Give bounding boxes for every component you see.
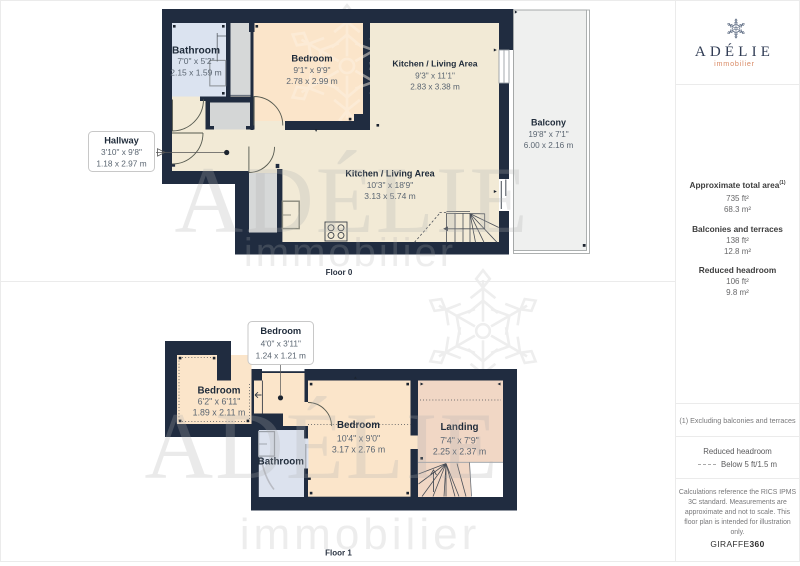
svg-text:Bathroom: Bathroom [172, 46, 220, 57]
svg-text:3'10" x 9'8": 3'10" x 9'8" [101, 147, 142, 157]
svg-text:immobilier: immobilier [240, 510, 480, 559]
svg-text:immobilier: immobilier [244, 231, 456, 275]
svg-text:Bedroom: Bedroom [260, 326, 301, 336]
svg-text:Hallway: Hallway [104, 136, 139, 146]
svg-text:19'8" x 7'1": 19'8" x 7'1" [528, 130, 568, 139]
svg-text:Bedroom: Bedroom [291, 53, 332, 64]
svg-text:4'0" x 3'11": 4'0" x 3'11" [261, 339, 301, 349]
svg-text:ADÉLIE: ADÉLIE [145, 393, 500, 499]
svg-text:2.83 x 3.38 m: 2.83 x 3.38 m [410, 83, 460, 92]
svg-text:Balcony: Balcony [531, 118, 566, 128]
svg-text:6.00 x 2.16 m: 6.00 x 2.16 m [524, 141, 574, 150]
svg-text:1.24 x 1.21 m: 1.24 x 1.21 m [256, 351, 306, 361]
svg-text:9'3" x 11'1": 9'3" x 11'1" [415, 72, 455, 81]
svg-text:2.78 x 2.99 m: 2.78 x 2.99 m [286, 76, 338, 86]
svg-text:Kitchen / Living Area: Kitchen / Living Area [392, 59, 477, 69]
svg-text:1.18 x 2.97 m: 1.18 x 2.97 m [96, 159, 146, 169]
svg-text:2.15 x 1.59 m: 2.15 x 1.59 m [170, 68, 222, 78]
svg-text:9'1" x 9'9": 9'1" x 9'9" [293, 65, 330, 75]
svg-text:7'0" x 5'2": 7'0" x 5'2" [177, 56, 214, 66]
